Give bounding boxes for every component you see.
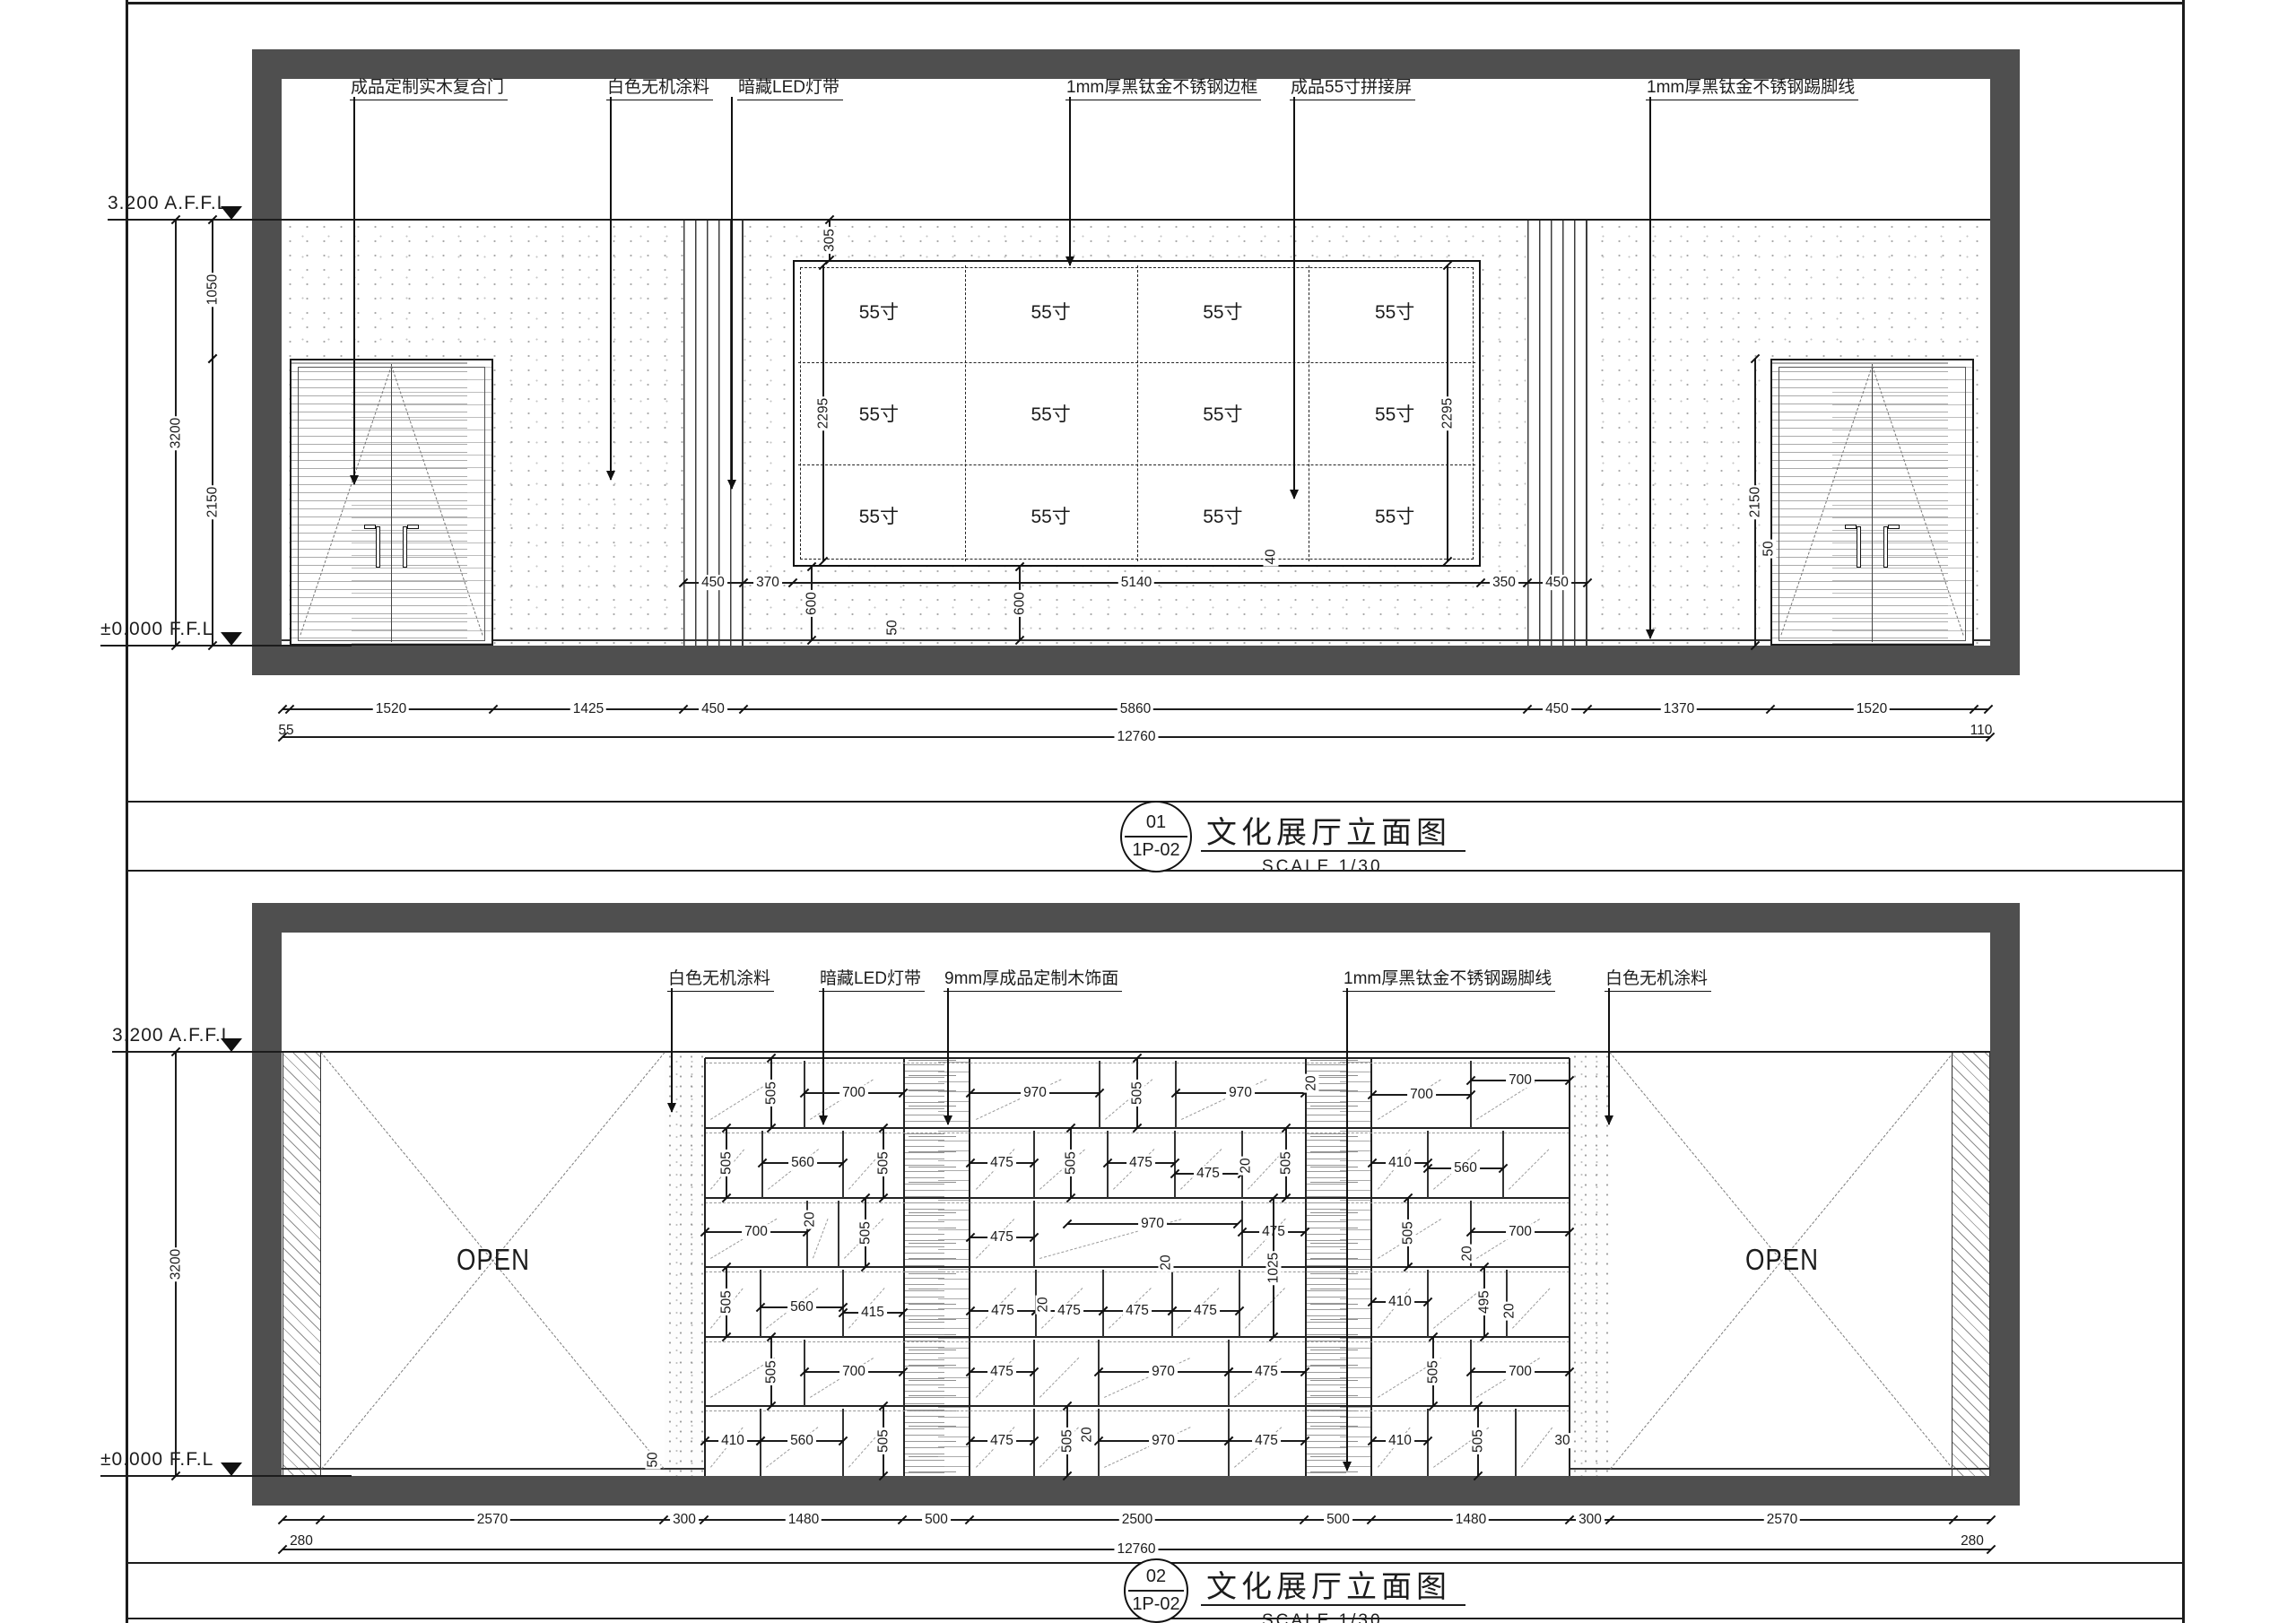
dim-label-rotated: 20 (1501, 1301, 1517, 1320)
dim-label: 505 (718, 1289, 734, 1315)
dim-label-rotated: 20 (1303, 1073, 1318, 1092)
dim-label-rotated: 20 (1158, 1253, 1173, 1271)
dim-label: 505 (1425, 1358, 1440, 1385)
dim-label: 475 (987, 1433, 1016, 1448)
title-circle-divider (1128, 1590, 1184, 1592)
title-underline (1201, 850, 1465, 852)
screen-cell-label: 55寸 (1031, 298, 1070, 325)
dim-label: 1520 (1854, 701, 1890, 716)
shelf-divider (1502, 1131, 1504, 1198)
dim-label: 700 (1506, 1224, 1535, 1239)
shelf-board (705, 1336, 1570, 1339)
open-label: OPEN (1745, 1243, 1819, 1277)
dim-label: 1050 (204, 272, 220, 306)
page-border-right (2182, 0, 2185, 1623)
dim-label: 505 (1129, 1080, 1144, 1107)
leader-line (1293, 97, 1294, 499)
dim-label: 30 (1552, 1433, 1572, 1448)
frame-bottom (252, 646, 2020, 675)
shelf-board (705, 1197, 1570, 1200)
dim-label-rotated: 50 (884, 618, 900, 637)
dim-label: 505 (1059, 1428, 1074, 1454)
door-center-stile (1872, 364, 1874, 642)
screen-grid-line (798, 464, 1475, 465)
leader-arrow-icon (944, 1115, 952, 1125)
dim-label-rotated: 40 (1263, 547, 1278, 566)
material-label: 1mm厚黑钛金不锈钢踢脚线 (1343, 965, 1555, 992)
dim-label: 475 (987, 1155, 1016, 1170)
dim-label: 505 (1278, 1150, 1293, 1176)
door-handle (1857, 526, 1861, 568)
dim-label: 970 (1149, 1433, 1178, 1448)
dim-label: 450 (699, 701, 727, 716)
dim-label: 410 (718, 1433, 747, 1448)
dim-label: 560 (787, 1299, 816, 1315)
screen-cell-label: 55寸 (859, 502, 899, 529)
dim-label: 475 (988, 1303, 1017, 1318)
dim-label: 2150 (204, 485, 220, 519)
screen-grid-line (965, 265, 966, 561)
screen-cell-label: 55寸 (1203, 400, 1242, 427)
screen-cell-label: 55寸 (1375, 298, 1414, 325)
dim-label-rotated: 20 (802, 1210, 817, 1228)
dim-label: 2295 (1439, 396, 1455, 430)
level-label: 3.200 A.F.F.L (108, 193, 228, 214)
dim-label: 2570 (474, 1512, 510, 1527)
dim-label: 560 (1451, 1160, 1480, 1176)
door-handle (376, 526, 380, 568)
dim-label: 505 (1470, 1428, 1485, 1454)
dim-label: 505 (875, 1428, 891, 1454)
frame-bottom (252, 1476, 2020, 1506)
shelf-led-dash (705, 1271, 1570, 1272)
ceiling-line (282, 1051, 1990, 1053)
skirting-line (282, 639, 1990, 640)
dim-label: 2150 (1747, 485, 1762, 519)
dim-label: 600 (1012, 590, 1027, 617)
shelf-board (705, 1266, 1570, 1269)
level-label: ±0.000 F.F.L (100, 619, 213, 640)
screen-cell-label: 55寸 (1375, 400, 1414, 427)
dim-label: 475 (1191, 1303, 1220, 1318)
title-underline (1201, 1604, 1465, 1606)
shelf-divider (838, 1201, 839, 1267)
drawing-scale: SCALE 1/30 (1262, 857, 1383, 877)
material-label: 暗藏LED灯带 (819, 965, 925, 992)
dim-label: 12760 (1114, 1541, 1158, 1557)
dim-label: 410 (1386, 1155, 1414, 1170)
dim-label: 1025 (1265, 1250, 1281, 1284)
drawing-scale: SCALE 1/30 (1262, 1611, 1383, 1623)
shelf-side (1569, 1058, 1571, 1476)
dim-label: 475 (987, 1364, 1016, 1379)
page-border-top (126, 2, 2183, 4)
leader-arrow-icon (1290, 490, 1299, 499)
dim-label: 475 (1252, 1364, 1281, 1379)
dim-label: 350 (1490, 575, 1518, 590)
door-center-stile (391, 364, 393, 642)
dim-label: 12760 (1114, 729, 1158, 744)
dim-label: 280 (287, 1533, 316, 1549)
material-label: 9mm厚成品定制木饰面 (944, 965, 1122, 992)
page-border-left (126, 0, 128, 1623)
dim-label: 1370 (1661, 701, 1697, 716)
leader-arrow-icon (819, 1115, 828, 1125)
dim-label: 1425 (570, 701, 606, 716)
paint-band (665, 1052, 705, 1476)
dim-label: 970 (1226, 1085, 1255, 1100)
dim-label-rotated: 20 (1238, 1156, 1253, 1175)
dim-label: 505 (763, 1358, 778, 1385)
door-handle-bar (407, 525, 419, 529)
dim-label: 560 (787, 1433, 816, 1448)
screen-cell-label: 55寸 (859, 298, 899, 325)
material-label: 白色无机涂料 (667, 965, 774, 992)
leader-arrow-icon (350, 475, 359, 485)
shelf-led-dash (705, 1133, 1570, 1133)
sheet-number: 1P-02 (1132, 840, 1179, 861)
dim-label: 700 (742, 1224, 770, 1239)
leader-arrow-icon (1605, 1115, 1613, 1125)
leader-line (1346, 988, 1347, 1471)
open-label: OPEN (457, 1243, 530, 1277)
dim-label: 700 (1506, 1364, 1535, 1379)
dim-label-rotated: 50 (645, 1450, 660, 1469)
leader-line (822, 988, 823, 1124)
door-handle (1883, 526, 1888, 568)
drawing-sheet: 55寸55寸55寸55寸55寸55寸55寸55寸55寸55寸55寸55寸成品定制… (0, 0, 2296, 1623)
dim-label: 450 (1543, 701, 1571, 716)
door-handle (403, 526, 407, 568)
dim-label: 5860 (1118, 701, 1153, 716)
dim-label: 2295 (815, 396, 831, 430)
leader-arrow-icon (667, 1103, 676, 1113)
dim-label: 475 (1123, 1303, 1152, 1318)
drawing-number: 01 (1146, 812, 1166, 833)
frame-right (1990, 49, 2020, 675)
screen-cell-label: 55寸 (1031, 400, 1070, 427)
dim-label: 305 (822, 227, 837, 254)
level-label: 3.200 A.F.F.L (112, 1025, 232, 1046)
dim-label: 505 (857, 1219, 873, 1246)
screen-grid-line (1309, 265, 1309, 561)
dim-label: 3200 (168, 1246, 183, 1280)
dim-label: 495 (1476, 1289, 1492, 1315)
leader-arrow-icon (1343, 1462, 1352, 1471)
material-label: 1mm厚黑钛金不锈钢边框 (1065, 74, 1261, 100)
dim-label-rotated: 20 (1035, 1295, 1050, 1314)
title-circle-divider (1125, 836, 1187, 838)
dim-label: 415 (858, 1305, 887, 1320)
dim-label: 475 (1252, 1433, 1281, 1448)
dim-label: 560 (788, 1155, 817, 1170)
level-triangle-icon (221, 632, 242, 646)
dim-label: 700 (1407, 1087, 1436, 1102)
level-triangle-icon (221, 206, 242, 220)
shelf-divider (1515, 1409, 1517, 1476)
dim-label: 3200 (168, 415, 183, 449)
dim-label: 300 (670, 1512, 699, 1527)
drawing-number: 02 (1146, 1567, 1166, 1587)
dim-label: 370 (753, 575, 782, 590)
wall-hatch-band (1952, 1052, 1990, 1476)
dim-label: 970 (1149, 1364, 1178, 1379)
dim-label: 410 (1386, 1433, 1414, 1448)
dim-label: 500 (922, 1512, 951, 1527)
screen-cell-label: 55寸 (859, 400, 899, 427)
shelf-divider (1102, 1270, 1104, 1337)
screen-cell-label: 55寸 (1031, 502, 1070, 529)
screen-cell-label: 55寸 (1375, 502, 1414, 529)
dim-label: 505 (718, 1150, 734, 1176)
dim-label: 1520 (373, 701, 409, 716)
shelf-led-dash (705, 1410, 1570, 1411)
dim-label: 475 (1194, 1166, 1222, 1181)
leader-line (1608, 988, 1609, 1124)
wall-hatch-band (283, 1052, 321, 1476)
shelf-led-dash (705, 1341, 1570, 1342)
dim-label-rotated: 20 (1459, 1244, 1474, 1263)
ceiling-line (282, 219, 1990, 221)
drawing-title: 文化展厅立面图 (1206, 808, 1451, 852)
dim-label: 700 (839, 1085, 868, 1100)
shelf-led-dash (705, 1202, 1570, 1203)
shelf-board (705, 1405, 1570, 1408)
dim-label: 700 (839, 1364, 868, 1379)
dim-label: 970 (1138, 1216, 1167, 1231)
dim-label-rotated: 50 (1761, 539, 1776, 558)
material-label: 成品55寸拼接屏 (1290, 74, 1415, 100)
door-handle-bar (1845, 525, 1857, 529)
material-label: 1mm厚黑钛金不锈钢踢脚线 (1646, 74, 1858, 100)
level-triangle-icon (221, 1038, 242, 1052)
frame-left (252, 49, 282, 675)
frame-top (252, 903, 2020, 933)
leader-line (671, 988, 672, 1112)
dim-label: 450 (1543, 575, 1571, 590)
material-label: 成品定制实木复合门 (350, 74, 508, 100)
dim-label: 410 (1386, 1294, 1414, 1309)
dim-label: 1480 (1453, 1512, 1489, 1527)
shelf-divider (1239, 1270, 1240, 1337)
dim-label: 970 (1021, 1085, 1049, 1100)
shelf-divider (1171, 1270, 1173, 1337)
dim-label: 450 (699, 575, 727, 590)
dim-label: 505 (875, 1150, 891, 1176)
dim-label: 300 (1576, 1512, 1605, 1527)
screen-grid-line (798, 362, 1475, 363)
shelf-divider (842, 1270, 844, 1337)
dim-label: 5140 (1118, 575, 1154, 590)
material-label: 暗藏LED灯带 (737, 74, 843, 100)
dim-label: 700 (1506, 1072, 1535, 1088)
dim-label: 600 (804, 590, 819, 617)
leader-line (731, 97, 732, 489)
leader-line (1069, 97, 1070, 265)
dim-label: 2500 (1119, 1512, 1155, 1527)
leader-arrow-icon (727, 480, 736, 490)
leader-line (947, 988, 948, 1124)
leader-line (1649, 97, 1650, 638)
dim-label: 500 (1324, 1512, 1352, 1527)
dim-label: 2570 (1764, 1512, 1800, 1527)
leader-line (353, 97, 354, 484)
door-handle-bar (1888, 525, 1900, 529)
frame-right (1990, 903, 2020, 1506)
leader-line (610, 97, 611, 480)
leader-arrow-icon (606, 471, 615, 481)
shelf-side (704, 1058, 707, 1476)
frame-left (252, 903, 282, 1506)
level-triangle-icon (221, 1462, 242, 1476)
dim-label: 505 (1400, 1219, 1415, 1246)
dim-label: 475 (987, 1229, 1016, 1245)
door-handle-bar (364, 525, 376, 529)
material-label: 白色无机涂料 (1605, 965, 1711, 992)
dim-label: 475 (1126, 1155, 1155, 1170)
dim-label: 475 (1055, 1303, 1083, 1318)
sheet-number: 1P-02 (1132, 1594, 1179, 1615)
level-label: ±0.000 F.F.L (100, 1449, 213, 1471)
dim-label-rotated: 20 (1079, 1425, 1094, 1444)
leader-arrow-icon (1065, 256, 1074, 266)
leader-arrow-icon (1646, 629, 1655, 639)
screen-cell-label: 55寸 (1203, 298, 1242, 325)
drawing-title: 文化展厅立面图 (1206, 1562, 1451, 1606)
screen-grid-line (1137, 265, 1138, 561)
dim-label: 505 (763, 1080, 778, 1107)
dim-label: 505 (1063, 1150, 1078, 1176)
material-label: 白色无机涂料 (606, 74, 713, 100)
shelf-divider (760, 1270, 761, 1337)
screen-cell-label: 55寸 (1203, 502, 1242, 529)
dim-label: 1480 (786, 1512, 822, 1527)
dim-label: 280 (1958, 1533, 1987, 1549)
